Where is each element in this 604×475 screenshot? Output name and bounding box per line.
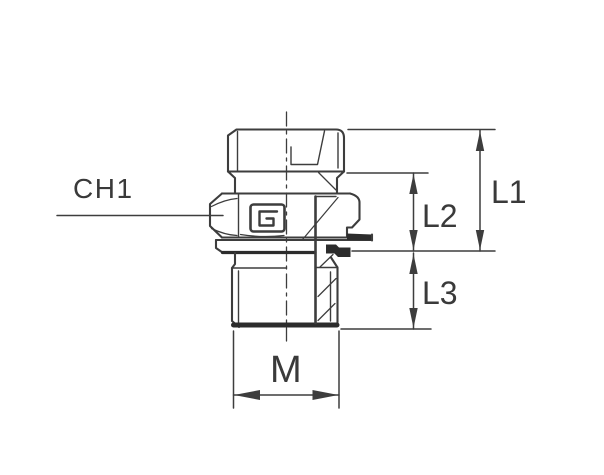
dimension-labels: CH1 L1 L2 L3 M xyxy=(73,173,527,391)
label-ch1: CH1 xyxy=(73,173,134,204)
seal-section-fill xyxy=(326,245,351,258)
washer-left-end xyxy=(216,240,223,253)
lower-neck-left xyxy=(232,253,235,268)
arrowhead-l1-up xyxy=(476,131,484,151)
hex-right-profile xyxy=(347,194,360,238)
washer-section-band xyxy=(347,234,372,241)
label-l2: L2 xyxy=(422,198,458,234)
top-port-section-bore xyxy=(291,131,325,165)
arrowhead-l2-up xyxy=(409,174,417,194)
arrowhead-l3-up xyxy=(409,254,417,274)
hatch-line xyxy=(303,198,338,240)
label-l1: L1 xyxy=(491,174,527,210)
hex-nut xyxy=(210,194,360,238)
seal-ring xyxy=(326,245,351,258)
label-l3: L3 xyxy=(422,275,458,311)
drawing-canvas: CH1 L1 L2 L3 M xyxy=(0,0,604,475)
upper-neck-right xyxy=(337,172,344,194)
hatch-line xyxy=(320,255,333,268)
upper-neck-left xyxy=(228,172,235,194)
hatch-line xyxy=(318,279,336,297)
arrowhead-l3-down xyxy=(409,308,417,328)
label-m: M xyxy=(270,349,302,391)
hex-front-flat-arc xyxy=(241,235,285,237)
arrowhead-l1-down xyxy=(476,230,484,250)
arrowhead-l2-down xyxy=(409,230,417,250)
arrowhead-m-left xyxy=(234,390,260,400)
logo-glyph xyxy=(260,212,278,226)
hatch-line xyxy=(318,304,335,321)
lower-neck-right xyxy=(331,258,338,268)
arrowhead-m-right xyxy=(313,390,339,400)
fitting-technical-drawing: CH1 L1 L2 L3 M xyxy=(0,0,604,475)
hatch-line xyxy=(319,173,337,191)
